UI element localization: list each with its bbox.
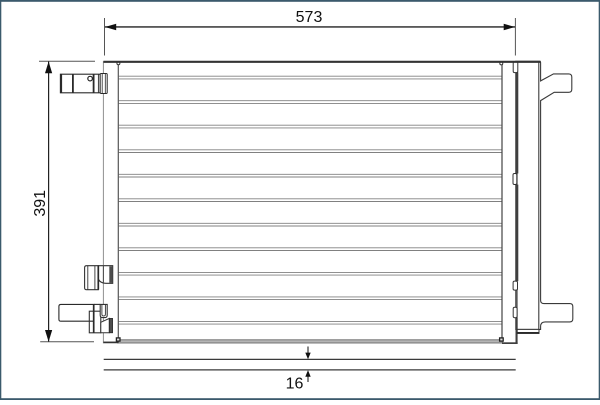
svg-text:16: 16	[286, 376, 304, 393]
svg-text:573: 573	[296, 9, 323, 26]
svg-text:391: 391	[32, 190, 49, 217]
